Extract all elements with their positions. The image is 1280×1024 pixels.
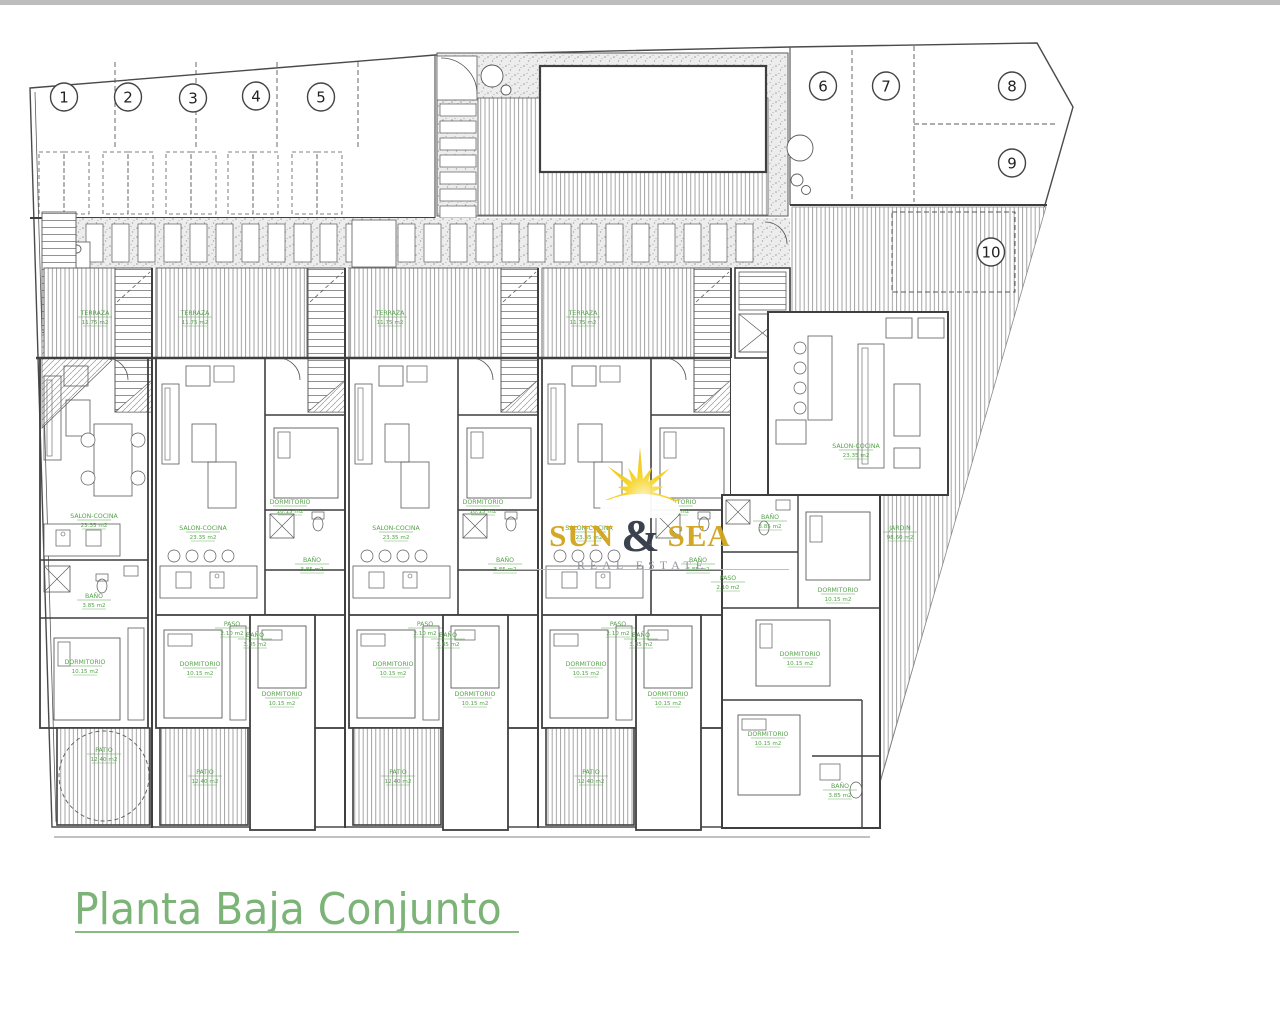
stepping-stone (320, 224, 337, 262)
room-label-salon: SALON-COCINA (372, 525, 420, 532)
room-label-bano: BAÑO (831, 781, 849, 790)
chair (131, 433, 145, 447)
walkway-landing (352, 220, 396, 267)
room-label-bano: BAÑO (496, 555, 514, 564)
faucet (61, 532, 65, 536)
stool (572, 550, 584, 562)
stool (415, 550, 427, 562)
stepping-stone (398, 224, 415, 262)
plot-number-3: 3 (188, 90, 198, 108)
room-label-dormitorio: DORMITORIO (65, 659, 106, 666)
bush-icon (481, 65, 503, 87)
room-label-bano: BAÑO (761, 512, 779, 521)
room-label-salon-area: 23.35 m2 (383, 535, 410, 541)
walkway-paving (52, 218, 790, 268)
faucet (408, 574, 412, 578)
stepping-stone (580, 224, 597, 262)
room-label-bano: BAÑO (246, 630, 264, 639)
room-label-dormitorio: DORMITORIO (270, 499, 311, 506)
plot-number-10: 10 (981, 244, 1000, 262)
room-label-terraza: TERRAZA (375, 310, 406, 317)
room-label-salon: SALON-COCINA (70, 513, 118, 520)
room-label-dormitorio: DORMITORIO (180, 661, 221, 668)
terrace (349, 268, 501, 358)
room-label-salon-area: 23.35 m2 (190, 535, 217, 541)
room-label-salon-area: 23.35 m2 (576, 535, 603, 541)
room-label-terraza-area: 11.75 m2 (377, 320, 404, 326)
plot-number-9: 9 (1007, 155, 1017, 173)
room-label-bano-area: 3.85 m2 (493, 567, 516, 573)
patio (57, 728, 150, 825)
stepping-stone (736, 224, 753, 262)
room-label-dormitorio-area: 10.15 m2 (380, 671, 407, 677)
stepping-stone (554, 224, 571, 262)
room-label-paso-area: 2.10 m2 (413, 631, 436, 637)
room-label-paso: PASO (417, 621, 433, 628)
chair (81, 433, 95, 447)
stool (379, 550, 391, 562)
stepping-stone (164, 224, 181, 262)
room-label-terraza-area: 11.75 m2 (182, 320, 209, 326)
stepping-stone (450, 224, 467, 262)
plot-number-5: 5 (316, 89, 326, 107)
room-label-dormitorio: DORMITORIO (656, 499, 697, 506)
terrace (542, 268, 694, 358)
room-label-patio: PATIO (196, 769, 214, 776)
floor-plan-drawing: JARDIN98.60 m2TERRAZA11.75 m2TERRAZA11.7… (0, 0, 1280, 1024)
room-label-dormitorio: DORMITORIO (780, 651, 821, 658)
room-label-patio-area: 12.40 m2 (385, 779, 412, 785)
stepping-stone (502, 224, 519, 262)
room-label-dormitorio-area: 10.15 m2 (755, 741, 782, 747)
stool (168, 550, 180, 562)
room-label-patio: PATIO (95, 747, 113, 754)
plan-title-underline (75, 931, 519, 933)
screenshot-top-strip (0, 0, 1280, 5)
room-label-bano-area: 3.85 m2 (243, 642, 266, 648)
stool (204, 550, 216, 562)
room-label-dormitorio-area: 10.15 m2 (269, 701, 296, 707)
bush-icon (787, 135, 813, 161)
stool (186, 550, 198, 562)
room-label-dormitorio: DORMITORIO (648, 691, 689, 698)
chair (131, 471, 145, 485)
room-label-paso-area: 2.10 m2 (606, 631, 629, 637)
bush-icon (501, 85, 511, 95)
room-label-terraza: TERRAZA (180, 310, 211, 317)
room-label-terraza-area: 11.75 m2 (570, 320, 597, 326)
plot-number-6: 6 (818, 78, 828, 96)
stepping-stone (528, 224, 545, 262)
plot-number-8: 8 (1007, 78, 1017, 96)
stepping-stone (216, 224, 233, 262)
room-label-patio-area: 12.40 m2 (578, 779, 605, 785)
room-label-dormitorio-area: 10.15 m2 (787, 661, 814, 667)
stepping-stone (632, 224, 649, 262)
room-label-dormitorio-area: 10.15 m2 (573, 671, 600, 677)
plot-number-2: 2 (123, 89, 133, 107)
room-label-dormitorio-area: 10.15 m2 (277, 509, 304, 515)
room-label-dormitorio: DORMITORIO (373, 661, 414, 668)
plot-number-4: 4 (251, 88, 261, 106)
stool (794, 362, 806, 374)
stepping-stone (440, 104, 476, 116)
room-label-salon: SALON-COCINA (179, 525, 227, 532)
stepping-stone (138, 224, 155, 262)
faucet (601, 574, 605, 578)
room-label-bano-area: 3.85 m2 (436, 642, 459, 648)
stepping-stone (440, 172, 476, 184)
room-label-dormitorio-area: 10.15 m2 (825, 597, 852, 603)
stool (361, 550, 373, 562)
stepping-stone (606, 224, 623, 262)
stepping-stone (440, 155, 476, 167)
room-label-paso-area: 2.10 m2 (220, 631, 243, 637)
room-label-bano: BAÑO (439, 630, 457, 639)
room-label-bano-area: 3.85 m2 (82, 603, 105, 609)
room-label-paso: PASO (610, 621, 626, 628)
stepping-stone (440, 121, 476, 133)
room-label-bano: BAÑO (689, 555, 707, 564)
room-label-patio-area: 12.40 m2 (192, 779, 219, 785)
terrace (156, 268, 307, 358)
patio (546, 728, 634, 825)
room-label-paso: PASO (720, 575, 736, 582)
stepping-stone (294, 224, 311, 262)
stool (794, 402, 806, 414)
room-label-dormitorio-area: 10.15 m2 (663, 509, 690, 515)
room-label-dormitorio: DORMITORIO (818, 587, 859, 594)
unit6-stairs (739, 272, 786, 310)
room-label-salon-area: 23.35 m2 (843, 453, 870, 459)
stepping-stone (476, 224, 493, 262)
room-label-terraza: TERRAZA (568, 310, 599, 317)
room-label-bano: BAÑO (303, 555, 321, 564)
pool-entry (437, 56, 477, 100)
swimming-pool (540, 66, 766, 172)
room-label-jardin-area: 98.60 m2 (887, 535, 914, 541)
stepping-stone (268, 224, 285, 262)
plot-number-1: 1 (59, 89, 69, 107)
room-label-bano-area: 3.85 m2 (629, 642, 652, 648)
room-label-dormitorio-area: 10.15 m2 (655, 701, 682, 707)
room-label-dormitorio-area: 10.15 m2 (187, 671, 214, 677)
room-label-terraza-area: 11.75 m2 (82, 320, 109, 326)
room-label-bano: BAÑO (85, 591, 103, 600)
chair (81, 471, 95, 485)
stepping-stone (424, 224, 441, 262)
room-label-bano-area: 3.85 m2 (686, 567, 709, 573)
room-label-dormitorio-area: 10.15 m2 (470, 509, 497, 515)
room-label-dormitorio: DORMITORIO (566, 661, 607, 668)
stool (794, 382, 806, 394)
room-label-dormitorio: DORMITORIO (463, 499, 504, 506)
plan-title-text: Planta Baja Conjunto (74, 884, 502, 935)
plan-title: Planta Baja Conjunto (74, 884, 534, 935)
stool (222, 550, 234, 562)
bush-icon (791, 174, 803, 186)
stool (794, 342, 806, 354)
stepping-stone (710, 224, 727, 262)
room-label-dormitorio: DORMITORIO (748, 731, 789, 738)
stepping-stone (440, 189, 476, 201)
floor-plan-page: JARDIN98.60 m2TERRAZA11.75 m2TERRAZA11.7… (0, 0, 1280, 1024)
stool (590, 550, 602, 562)
kitchen-counter (546, 566, 643, 598)
room-label-terraza: TERRAZA (80, 310, 111, 317)
stepping-stone (684, 224, 701, 262)
stepping-stone (440, 206, 476, 218)
room-label-bano-area: 3.85 m2 (828, 793, 851, 799)
room-label-patio: PATIO (582, 769, 600, 776)
room-label-paso: PASO (224, 621, 240, 628)
room-label-salon: SALON-COCINA (832, 443, 880, 450)
room-label-bano: BAÑO (632, 630, 650, 639)
stepping-stone (242, 224, 259, 262)
stool (397, 550, 409, 562)
room-label-dormitorio-area: 10.15 m2 (462, 701, 489, 707)
stepping-stone (440, 138, 476, 150)
patio (353, 728, 441, 825)
room-label-bano-area: 3.85 m2 (300, 567, 323, 573)
stepping-stone (190, 224, 207, 262)
room-label-dormitorio: DORMITORIO (262, 691, 303, 698)
room-label-bano-area: 3.85 m2 (758, 524, 781, 530)
room-label-jardin: JARDIN (888, 525, 911, 532)
room-label-dormitorio-area: 10.15 m2 (72, 669, 99, 675)
stepping-stone (112, 224, 129, 262)
kitchen-counter (160, 566, 257, 598)
room-label-patio-area: 12.40 m2 (91, 757, 118, 763)
kitchen-counter (353, 566, 450, 598)
stool (608, 550, 620, 562)
bush-icon (802, 186, 811, 195)
room-label-dormitorio: DORMITORIO (455, 691, 496, 698)
room-label-salon: SALON-COCINA (565, 525, 613, 532)
plot-number-7: 7 (881, 78, 891, 96)
room-label-paso-area: 2.10 m2 (716, 585, 739, 591)
stool (554, 550, 566, 562)
stepping-stone (658, 224, 675, 262)
room-label-patio: PATIO (389, 769, 407, 776)
room-label-salon-area: 23.35 m2 (81, 523, 108, 529)
patio (160, 728, 248, 825)
faucet (215, 574, 219, 578)
